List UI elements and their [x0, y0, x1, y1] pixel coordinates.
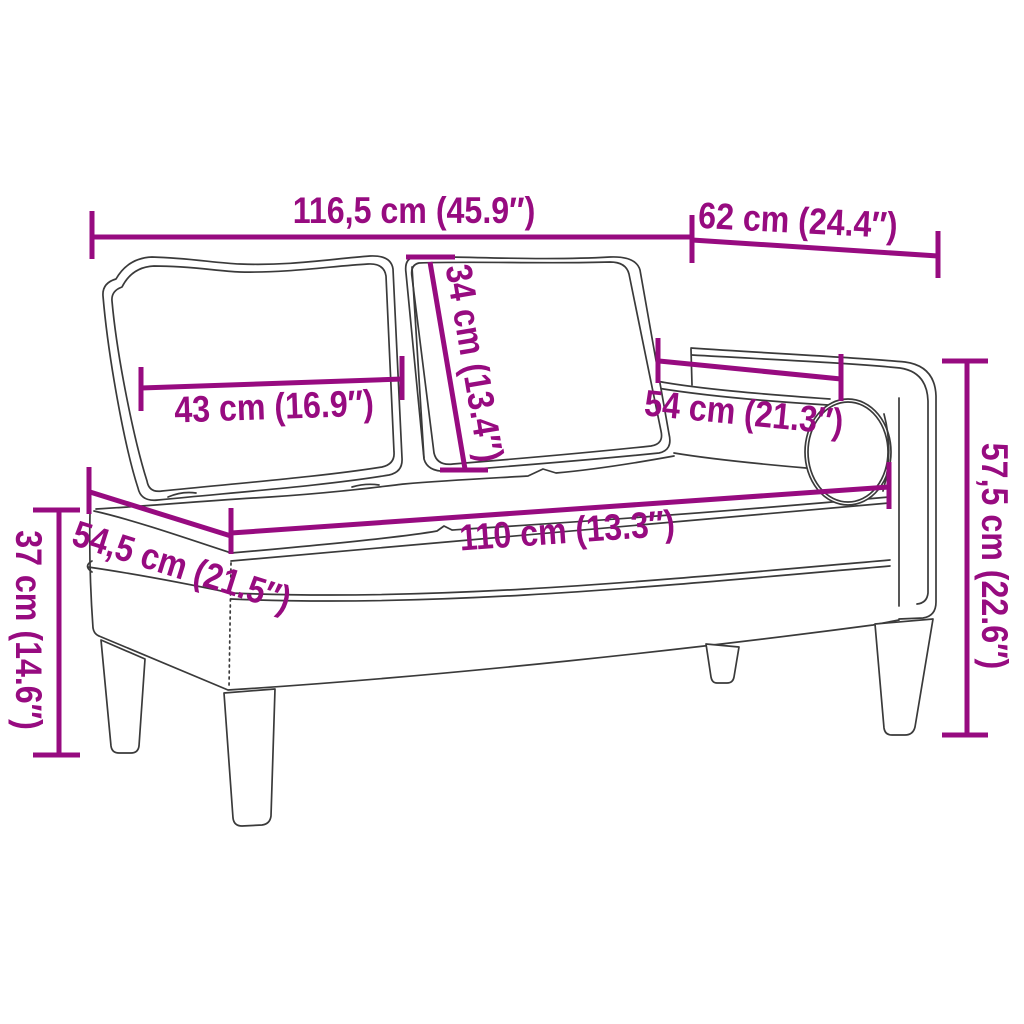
svg-text:37 cm (14.6″): 37 cm (14.6″): [7, 530, 48, 730]
svg-text:43 cm (16.9″): 43 cm (16.9″): [174, 384, 375, 431]
svg-text:57,5 cm (22.6″): 57,5 cm (22.6″): [973, 443, 1014, 669]
svg-text:116,5 cm (45.9″): 116,5 cm (45.9″): [293, 191, 536, 232]
